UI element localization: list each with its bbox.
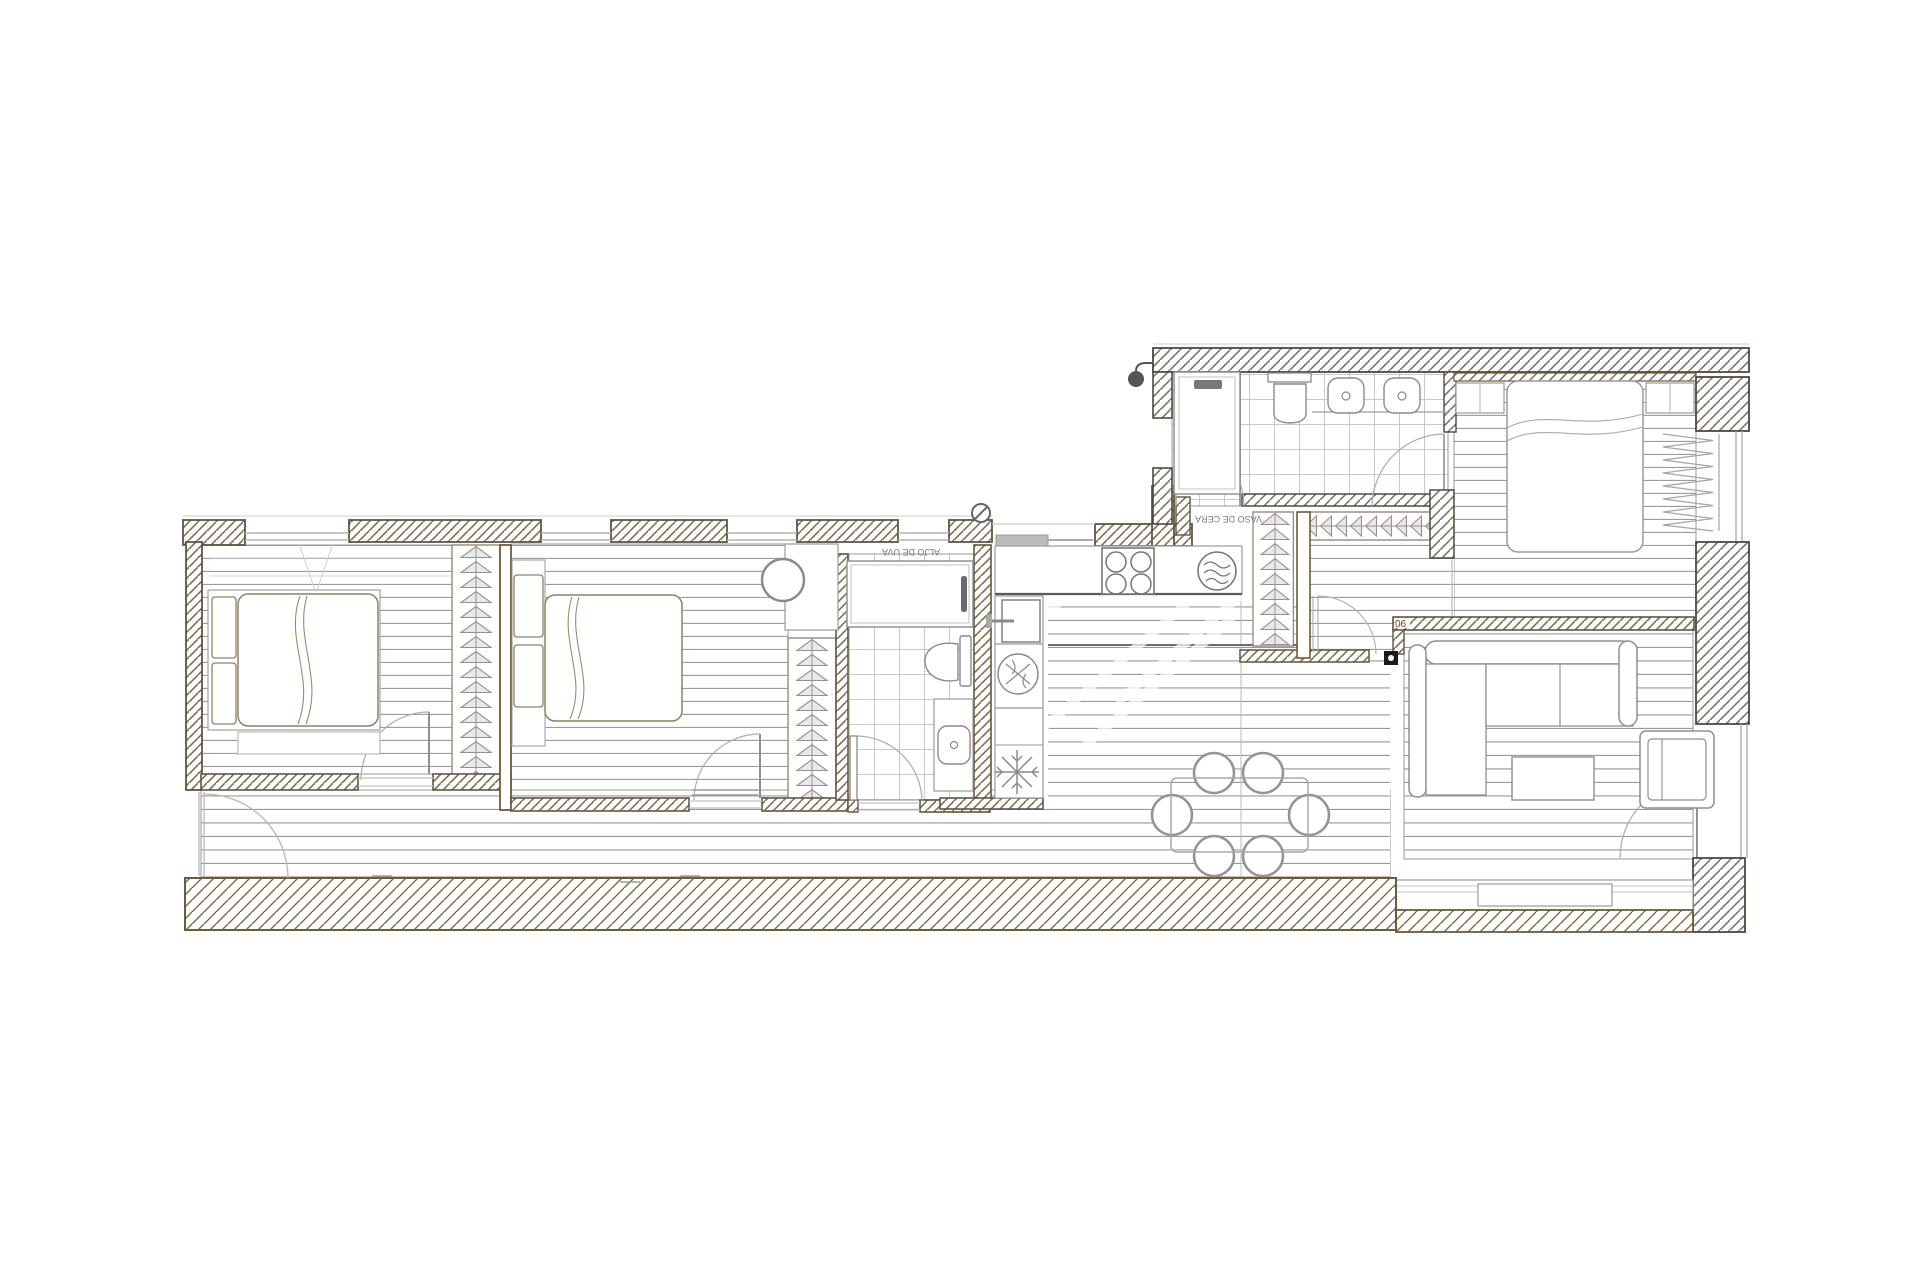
svg-text:ALJO DE UVA: ALJO DE UVA [882, 547, 940, 557]
svg-text:VASO DE CERA: VASO DE CERA [1195, 514, 1262, 524]
svg-text:06: 06 [1395, 619, 1407, 630]
